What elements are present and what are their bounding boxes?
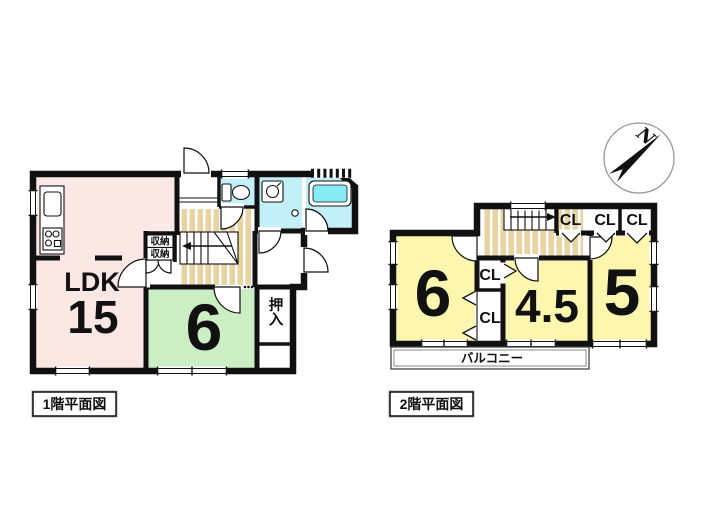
sink-icon [262, 181, 283, 202]
closet-mid-label: CL [479, 267, 501, 284]
storage-door-left-arc [146, 260, 159, 273]
compass: N [604, 123, 674, 193]
washroom-door-arc [259, 231, 281, 253]
room-6-1f-size: 6 [186, 290, 223, 364]
stove-icon [43, 228, 62, 250]
room-45-2f-size: 4.5 [515, 280, 579, 332]
back-door-arc [304, 248, 328, 272]
storage-door-right-arc [158, 260, 171, 273]
closet-top-2-label: CL [594, 212, 616, 229]
sliding-opening-dots [244, 286, 257, 289]
caption-2f-box: 2階平面図 [389, 391, 474, 417]
balcony-label: バルコニー [461, 352, 523, 366]
stairs-1f [179, 209, 253, 285]
closet-lower-label: CL [479, 310, 501, 327]
kitchen-counter [40, 186, 64, 254]
storage-upper-label: 収納 [150, 236, 169, 248]
closet-top-1-label: CL [560, 212, 582, 229]
floorplan-page: LDK 15 6 押入 収納 収納 [0, 0, 705, 525]
bathtub-icon [309, 181, 351, 206]
caption-1f-label: 1階平面図 [43, 396, 107, 412]
floorplan-drawing: LDK 15 6 押入 収納 収納 [0, 0, 705, 525]
toilet-icon [222, 184, 250, 201]
room-5-2f-size: 5 [604, 255, 641, 329]
oshiire-label: 押入 [267, 296, 283, 327]
storage-lower-label: 収納 [150, 248, 169, 260]
room-6-2f-size: 6 [415, 256, 452, 330]
floor1-plan: LDK 15 6 押入 収納 収納 [29, 148, 356, 376]
kitchen-sink-icon [44, 192, 61, 216]
balcony: バルコニー [391, 347, 589, 369]
washing-machine-icon [292, 210, 298, 216]
closet-top-3-label: CL [626, 212, 648, 229]
room-ldk-size: 15 [67, 291, 118, 343]
bath-louver-window [311, 169, 352, 179]
floor2-plan: バルコニー 6 4.5 5 CL CL CL CL CL [389, 202, 659, 370]
caption-1f-box: 1階平面図 [32, 391, 117, 417]
entrance-door-arc [184, 148, 209, 173]
entrance-step-line [179, 198, 218, 202]
caption-2f-label: 2階平面図 [400, 396, 464, 412]
